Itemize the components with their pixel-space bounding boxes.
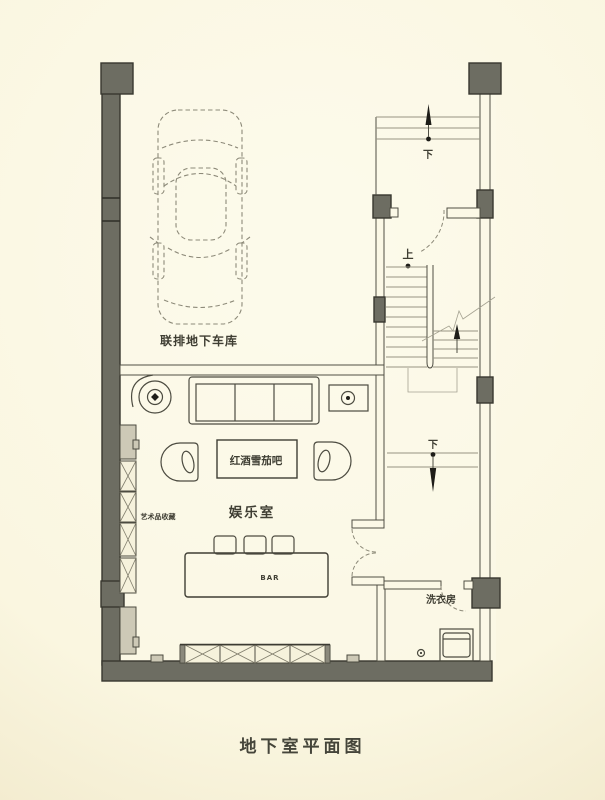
basement-floor-plan: 下 上 [0,0,605,800]
column-stair-top [373,195,391,218]
art-collection-label: 艺术品收藏 [141,512,176,521]
x-cabinet [120,558,136,593]
stair-start-dot [406,264,411,269]
art-display-cabinets [120,425,139,654]
bottom-cabinets [180,645,330,664]
column-right-2 [477,377,493,403]
bar-label: BAR [260,574,279,582]
wine-cigar-label: 红酒雪茄吧 [230,454,283,467]
x-cabinet [120,461,136,491]
bottom-wall [102,661,492,681]
x-cabinet [120,523,136,556]
floor-drain-dot [420,652,422,654]
x-cabinet [120,492,136,522]
double-door-jamb-bottom [352,577,384,585]
column-stair-mid [374,297,385,322]
garage-room-wall [120,365,384,375]
column-right-3 [472,578,500,608]
floor-plan-drawing: 下 上 [0,0,605,800]
floor-stop [151,655,163,662]
laundry-wall-stub [464,581,473,589]
hall-down-label: 下 [428,439,438,451]
entertainment-room-label: 娱乐室 [229,504,276,521]
garage-label: 联排地下车库 [160,333,238,348]
stair-up-label: 上 [403,247,414,261]
door-wall-stub [447,208,480,218]
column-top-right [469,63,501,94]
double-door-jamb-top [352,520,384,528]
laundry-top-wall [384,581,441,589]
left-wall [102,90,120,665]
entry-arrow-dot [426,137,431,142]
column-top-left [101,63,133,94]
entry-down-label: 下 [423,149,433,161]
plan-title: 地下室平面图 [0,732,605,757]
door-jamb [390,208,398,217]
floor-stop [347,655,359,662]
laundry-left-wall [377,585,385,661]
laundry-room-label: 洗衣房 [426,593,456,606]
